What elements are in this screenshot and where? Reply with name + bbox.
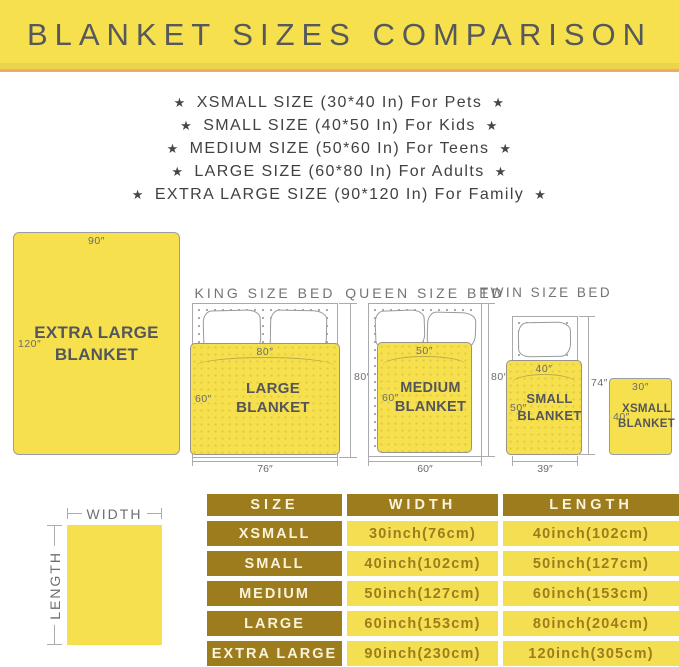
size-list-text: SMALL SIZE (40*50 In) For Kids bbox=[203, 117, 476, 135]
xl-blanket-label: EXTRA LARGE BLANKET bbox=[34, 322, 159, 365]
table-header-width: WIDTH bbox=[347, 494, 498, 516]
xsmall-blanket: 30″ 40″ XSMALL BLANKET bbox=[609, 378, 672, 455]
star-icon: ★ bbox=[534, 187, 547, 203]
table-row-width: 60inch(153cm) bbox=[347, 611, 498, 636]
queen-width-dim: 60″ bbox=[368, 463, 482, 475]
legend-blanket-swatch bbox=[67, 525, 162, 645]
table-row-width: 30inch(76cm) bbox=[347, 521, 498, 546]
size-list-text: MEDIUM SIZE (50*60 In) For Teens bbox=[190, 140, 490, 158]
table-header-length: LENGTH bbox=[503, 494, 679, 516]
pillow bbox=[518, 322, 572, 358]
blanket-fold bbox=[512, 374, 576, 383]
size-list-item: ★ LARGE SIZE (60*80 In) For Adults ★ bbox=[161, 160, 517, 183]
size-list-text: EXTRA LARGE SIZE (90*120 In) For Family bbox=[155, 186, 524, 204]
size-list-text: XSMALL SIZE (30*40 In) For Pets bbox=[197, 94, 483, 112]
xsmall-width-dim: 30″ bbox=[610, 381, 671, 393]
twin-height-dim: 74″ bbox=[591, 377, 608, 389]
star-icon: ★ bbox=[132, 187, 145, 203]
table-row-length: 40inch(102cm) bbox=[503, 521, 679, 546]
table-row-size: SMALL bbox=[207, 551, 342, 576]
king-width-dim: 76″ bbox=[192, 463, 338, 475]
queen-height-dim-line bbox=[488, 303, 489, 457]
dim-tick bbox=[339, 303, 357, 304]
small-blanket: 40″ 50″ SMALL BLANKET bbox=[506, 360, 582, 455]
large-blanket-length-dim: 60″ bbox=[195, 393, 212, 405]
medium-blanket-length-dim: 60″ bbox=[382, 392, 399, 404]
large-blanket: 80″ 60″ LARGE BLANKET bbox=[190, 343, 340, 455]
table-row-size: EXTRA LARGE bbox=[207, 641, 342, 666]
table-row-length: 60inch(153cm) bbox=[503, 581, 679, 606]
star-icon: ★ bbox=[492, 95, 505, 111]
star-icon: ★ bbox=[167, 141, 180, 157]
page-title: BLANKET SIZES COMPARISON bbox=[27, 17, 652, 53]
blanket-fold bbox=[383, 356, 466, 365]
dim-tick bbox=[47, 644, 62, 645]
table-row-width: 90inch(230cm) bbox=[347, 641, 498, 666]
small-blanket-length-dim: 50″ bbox=[510, 402, 527, 414]
small-blanket-width-dim: 40″ bbox=[507, 363, 581, 375]
legend-width-label: WIDTH bbox=[82, 506, 148, 522]
xl-width-dim: 90″ bbox=[14, 235, 179, 247]
size-list-item: ★ SMALL SIZE (40*50 In) For Kids ★ bbox=[170, 114, 509, 137]
twin-width-dim: 39″ bbox=[512, 463, 578, 475]
table-row-length: 80inch(204cm) bbox=[503, 611, 679, 636]
queen-bed-title: QUEEN SIZE BED bbox=[368, 285, 482, 301]
table-header-size: SIZE bbox=[207, 494, 342, 516]
size-list: ★ XSMALL SIZE (30*40 In) For Pets ★ ★ SM… bbox=[0, 91, 679, 206]
king-bed-title: KING SIZE BED bbox=[192, 285, 338, 301]
queen-width-dim-line bbox=[368, 461, 482, 462]
star-icon: ★ bbox=[174, 95, 187, 111]
twin-height-dim-line bbox=[588, 316, 589, 455]
size-list-item: ★ MEDIUM SIZE (50*60 In) For Teens ★ bbox=[157, 137, 523, 160]
star-icon: ★ bbox=[486, 118, 499, 134]
table-row-length: 50inch(127cm) bbox=[503, 551, 679, 576]
legend-width-label-wrap: WIDTH bbox=[67, 506, 162, 521]
star-icon: ★ bbox=[171, 164, 184, 180]
legend-length-label: LENGTH bbox=[47, 546, 63, 625]
king-width-dim-line bbox=[192, 461, 338, 462]
size-list-item: ★ XSMALL SIZE (30*40 In) For Pets ★ bbox=[164, 91, 516, 114]
table-row-width: 40inch(102cm) bbox=[347, 551, 498, 576]
dim-tick bbox=[47, 525, 62, 526]
xsmall-length-dim: 40″ bbox=[613, 411, 630, 423]
star-icon: ★ bbox=[495, 164, 508, 180]
table-row-size: MEDIUM bbox=[207, 581, 342, 606]
infographic-page: BLANKET SIZES COMPARISON ★ XSMALL SIZE (… bbox=[0, 0, 679, 667]
dim-tick bbox=[339, 457, 357, 458]
star-icon: ★ bbox=[499, 141, 512, 157]
extra-large-blanket: 90″ 120″ EXTRA LARGE BLANKET bbox=[13, 232, 180, 455]
large-blanket-label: LARGE BLANKET bbox=[191, 380, 339, 418]
star-icon: ★ bbox=[180, 118, 193, 134]
dim-tick bbox=[482, 456, 495, 457]
size-table: SIZE WIDTH LENGTH XSMALL 30inch(76cm) 40… bbox=[207, 494, 679, 666]
table-row-size: XSMALL bbox=[207, 521, 342, 546]
size-list-item: ★ EXTRA LARGE SIZE (90*120 In) For Famil… bbox=[122, 183, 558, 206]
medium-blanket-width-dim: 50″ bbox=[378, 345, 471, 357]
legend-length-label-wrap: LENGTH bbox=[46, 543, 63, 627]
medium-blanket: 50″ 60″ MEDIUM BLANKET bbox=[377, 342, 472, 453]
dim-tick bbox=[579, 454, 595, 455]
table-row-width: 50inch(127cm) bbox=[347, 581, 498, 606]
large-blanket-width-dim: 80″ bbox=[191, 346, 339, 358]
table-row-size: LARGE bbox=[207, 611, 342, 636]
king-height-dim-line bbox=[350, 303, 351, 458]
dim-tick bbox=[482, 303, 495, 304]
banner: BLANKET SIZES COMPARISON bbox=[0, 0, 679, 72]
blanket-fold bbox=[196, 357, 334, 366]
twin-width-dim-line bbox=[512, 461, 578, 462]
size-list-text: LARGE SIZE (60*80 In) For Adults bbox=[194, 163, 484, 181]
dim-tick bbox=[579, 316, 595, 317]
table-row-length: 120inch(305cm) bbox=[503, 641, 679, 666]
xl-length-dim: 120″ bbox=[18, 338, 41, 350]
twin-bed-title: TWIN SIZE BED bbox=[500, 285, 592, 300]
